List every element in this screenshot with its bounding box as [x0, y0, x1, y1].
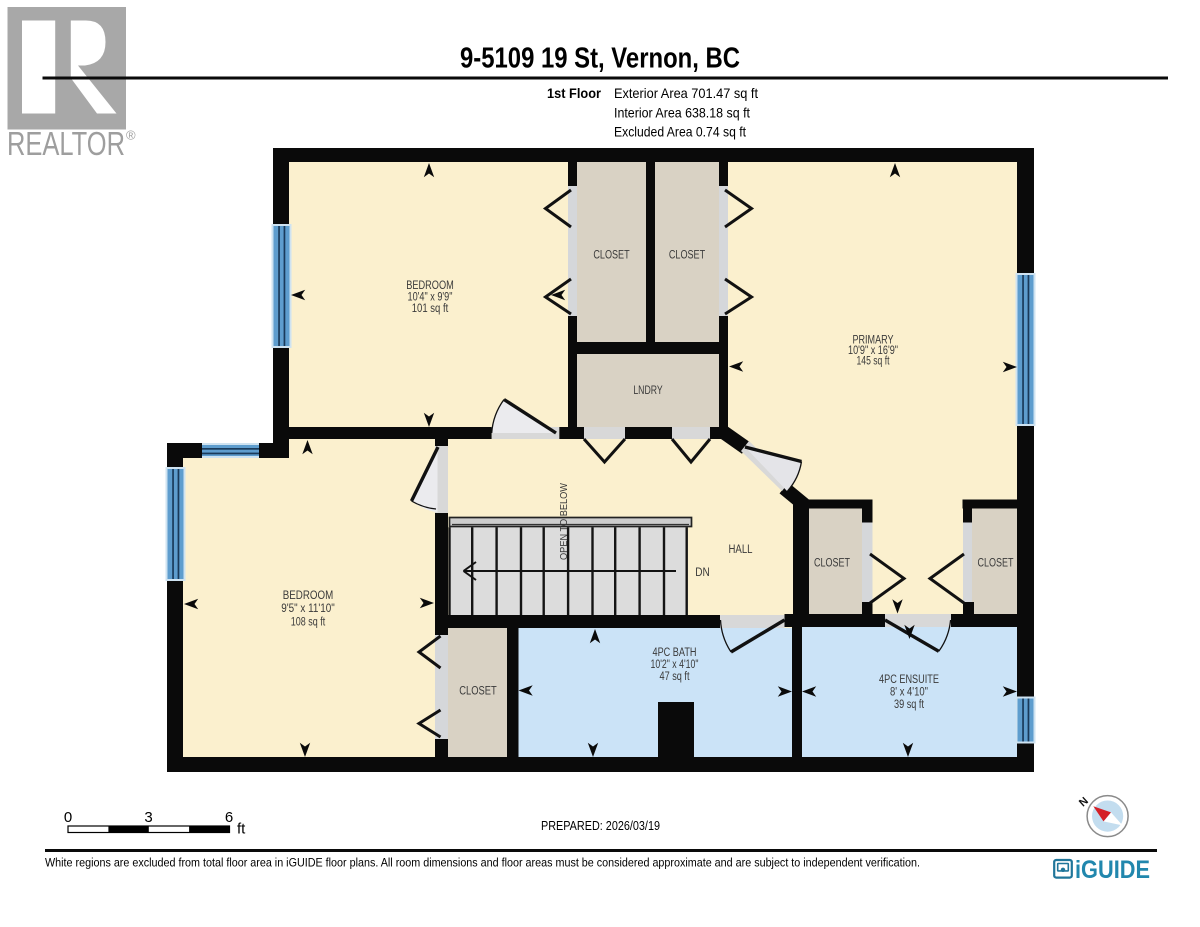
svg-text:6: 6 — [225, 809, 233, 826]
svg-text:9-5109 19 St, Vernon, BC: 9-5109 19 St, Vernon, BC — [460, 43, 740, 75]
svg-text:CLOSET: CLOSET — [459, 686, 496, 698]
svg-text:145 sq ft: 145 sq ft — [857, 356, 891, 368]
svg-text:REALTOR: REALTOR — [7, 125, 125, 162]
svg-text:9'5" x 11'10": 9'5" x 11'10" — [281, 603, 335, 615]
svg-text:Interior Area 638.18 sq ft: Interior Area 638.18 sq ft — [614, 104, 750, 120]
svg-text:ft: ft — [237, 821, 246, 838]
svg-text:4PC BATH: 4PC BATH — [653, 647, 697, 659]
svg-text:BEDROOM: BEDROOM — [406, 280, 454, 292]
svg-text:10'2" x 4'10": 10'2" x 4'10" — [651, 659, 699, 671]
svg-text:101 sq ft: 101 sq ft — [412, 303, 449, 315]
svg-text:CLOSET: CLOSET — [593, 250, 629, 262]
svg-text:PREPARED: 2026/03/19: PREPARED: 2026/03/19 — [541, 819, 660, 833]
svg-text:Excluded Area 0.74 sq ft: Excluded Area 0.74 sq ft — [614, 124, 746, 140]
svg-text:CLOSET: CLOSET — [669, 250, 705, 262]
svg-text:10'4" x 9'9": 10'4" x 9'9" — [408, 292, 453, 304]
svg-text:White regions are excluded fro: White regions are excluded from total fl… — [45, 856, 920, 870]
svg-text:8' x 4'10": 8' x 4'10" — [890, 687, 928, 699]
svg-text:iGUIDE: iGUIDE — [1075, 856, 1150, 884]
svg-text:LNDRY: LNDRY — [633, 385, 663, 397]
svg-text:1st Floor: 1st Floor — [547, 85, 601, 101]
svg-text:CLOSET: CLOSET — [814, 558, 850, 570]
svg-text:OPEN TO BELOW: OPEN TO BELOW — [558, 483, 570, 560]
svg-text:0: 0 — [64, 809, 72, 826]
svg-text:DN: DN — [695, 567, 710, 579]
svg-text:39 sq ft: 39 sq ft — [894, 699, 925, 711]
svg-text:4PC ENSUITE: 4PC ENSUITE — [879, 674, 939, 686]
svg-text:108 sq ft: 108 sq ft — [291, 617, 326, 629]
svg-text:HALL: HALL — [729, 544, 753, 556]
svg-text:CLOSET: CLOSET — [978, 558, 1014, 570]
svg-text:Exterior Area 701.47 sq ft: Exterior Area 701.47 sq ft — [614, 85, 758, 101]
svg-text:3: 3 — [144, 809, 152, 826]
svg-text:BEDROOM: BEDROOM — [283, 590, 333, 602]
svg-text:47 sq ft: 47 sq ft — [660, 671, 691, 683]
svg-text:®: ® — [126, 128, 136, 143]
